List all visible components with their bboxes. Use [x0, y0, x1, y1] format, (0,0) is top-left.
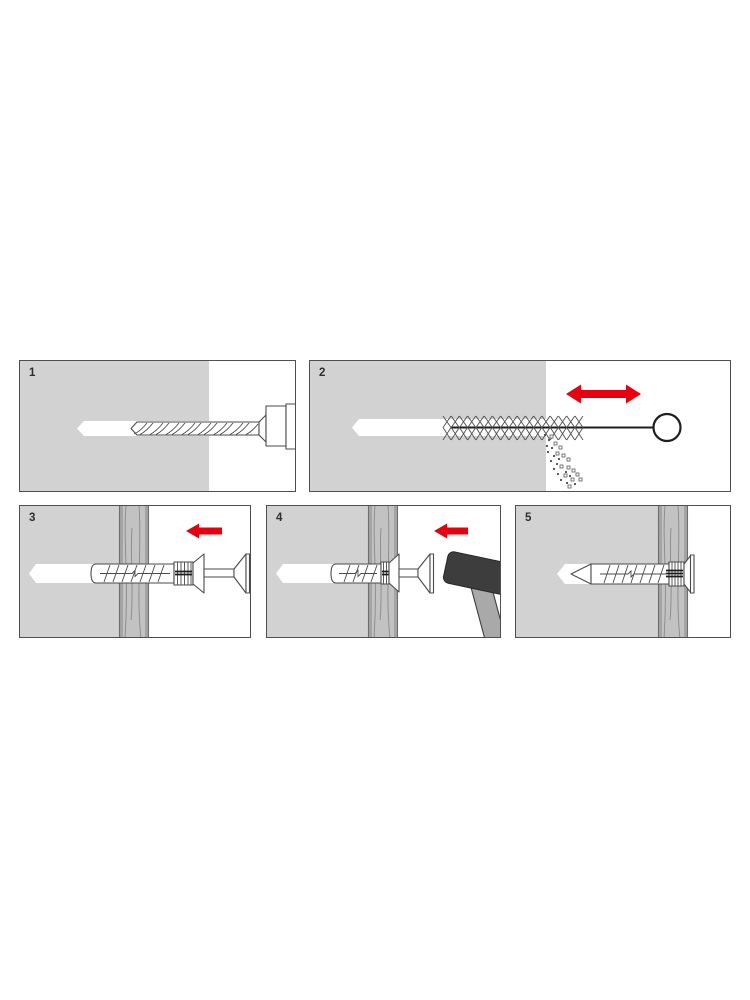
anchor-nail — [399, 554, 434, 593]
installation-instruction-sheet: 1 2 — [0, 0, 750, 1000]
drill-bit-icon — [20, 361, 296, 492]
hammer-icon — [267, 506, 501, 638]
installed-anchor-icon — [516, 506, 731, 638]
step-panel-4: 4 — [266, 505, 501, 638]
drill-chuck — [259, 404, 296, 449]
left-arrow-icon — [434, 524, 468, 539]
step-panel-3: 3 — [19, 505, 251, 638]
step-panel-5: 5 — [515, 505, 731, 638]
cleaning-brush-icon — [310, 361, 731, 492]
step-number-5: 5 — [525, 513, 531, 525]
dust-particles — [544, 434, 582, 488]
drill-bit — [131, 422, 259, 435]
left-arrow-icon — [186, 524, 222, 539]
hammer — [442, 551, 501, 638]
step-number-3: 3 — [29, 513, 35, 525]
nail-anchor-icon — [20, 506, 251, 638]
anchor-sleeve — [571, 562, 684, 586]
step-number-1: 1 — [29, 368, 35, 380]
ring-handle — [654, 414, 681, 441]
step-number-4: 4 — [276, 513, 282, 525]
step-number-2: 2 — [319, 368, 325, 380]
step-panel-2: 2 — [309, 360, 731, 492]
double-arrow-icon — [566, 385, 641, 404]
step-panel-1: 1 — [19, 360, 296, 492]
anchor-nail — [204, 554, 250, 593]
